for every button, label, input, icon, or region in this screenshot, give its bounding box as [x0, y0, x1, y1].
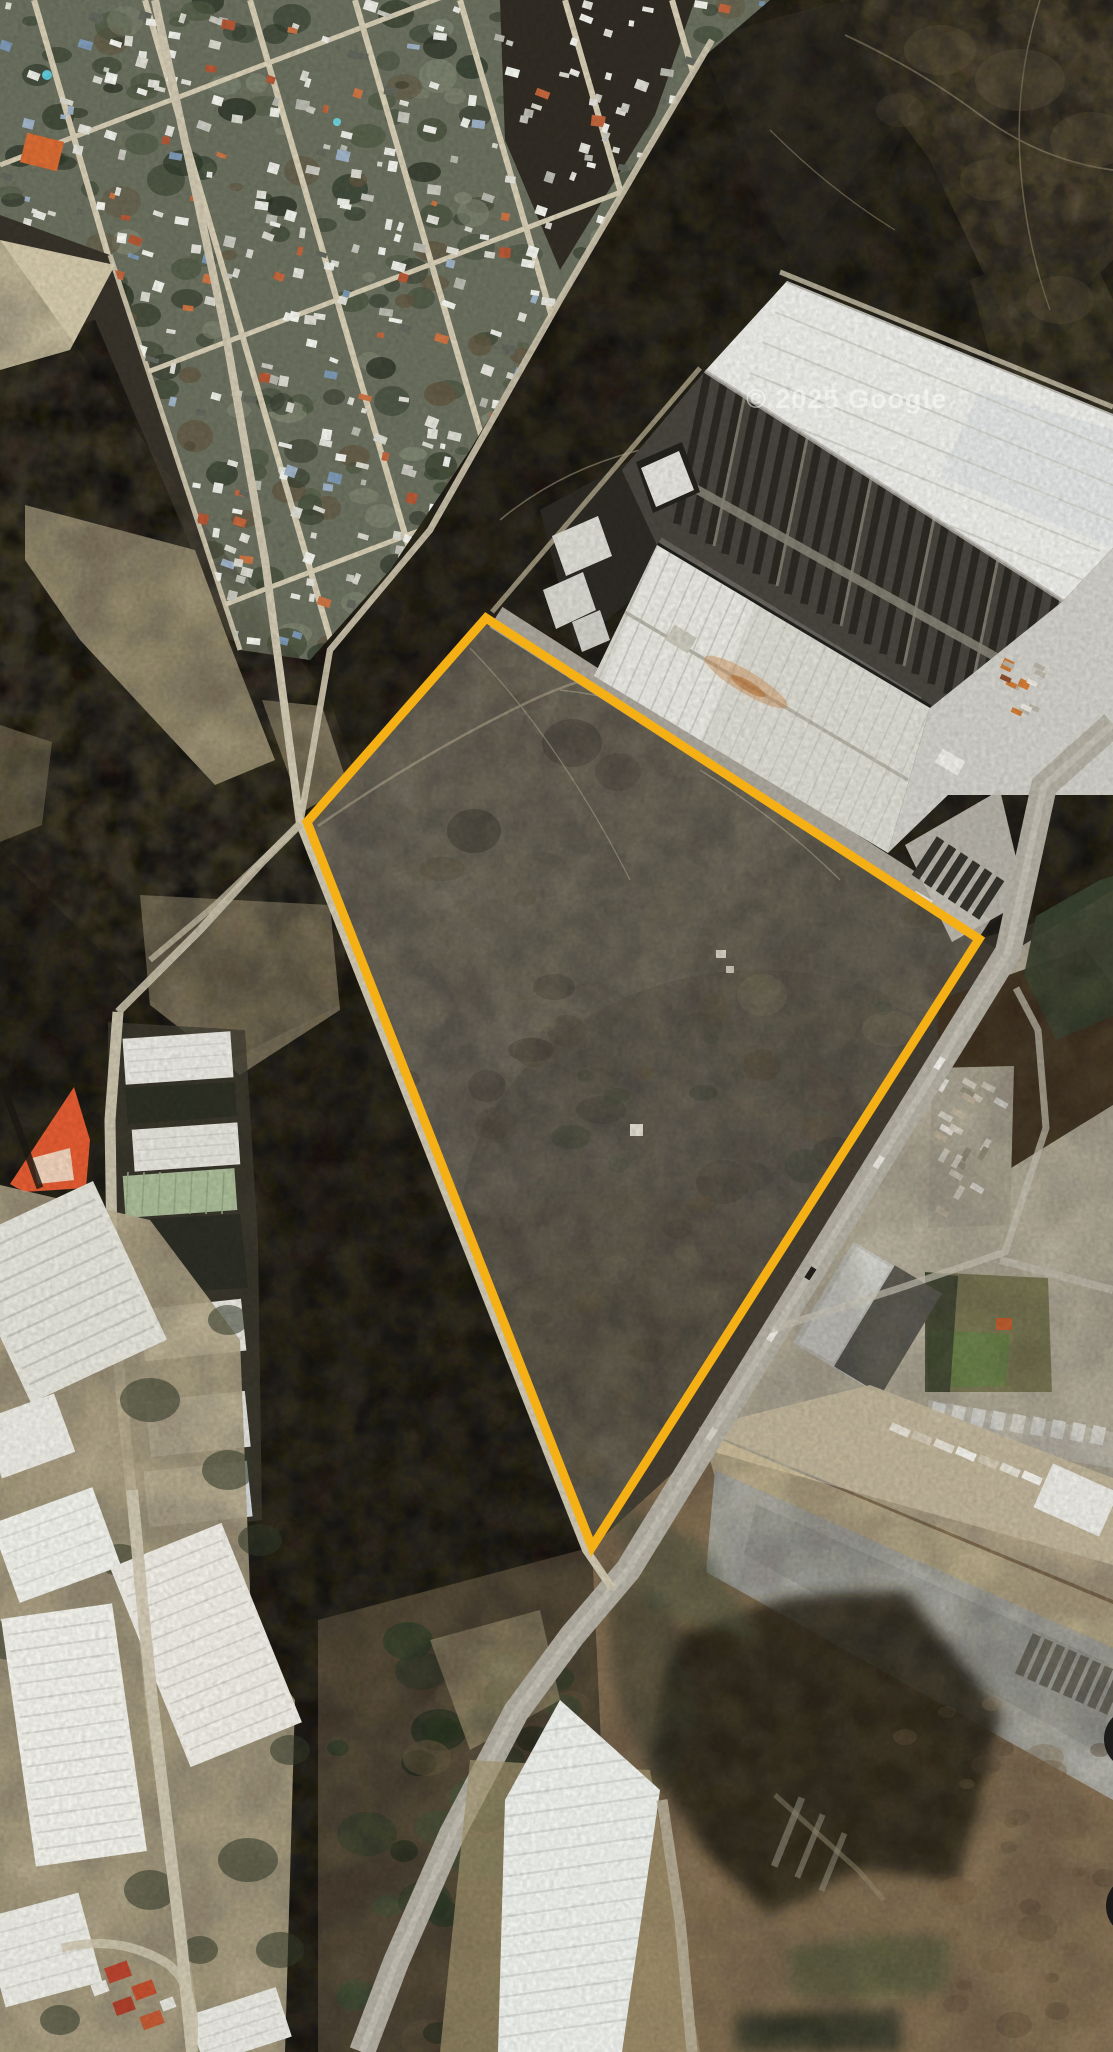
- svg-text:© 2025 Google: © 2025 Google: [746, 384, 947, 414]
